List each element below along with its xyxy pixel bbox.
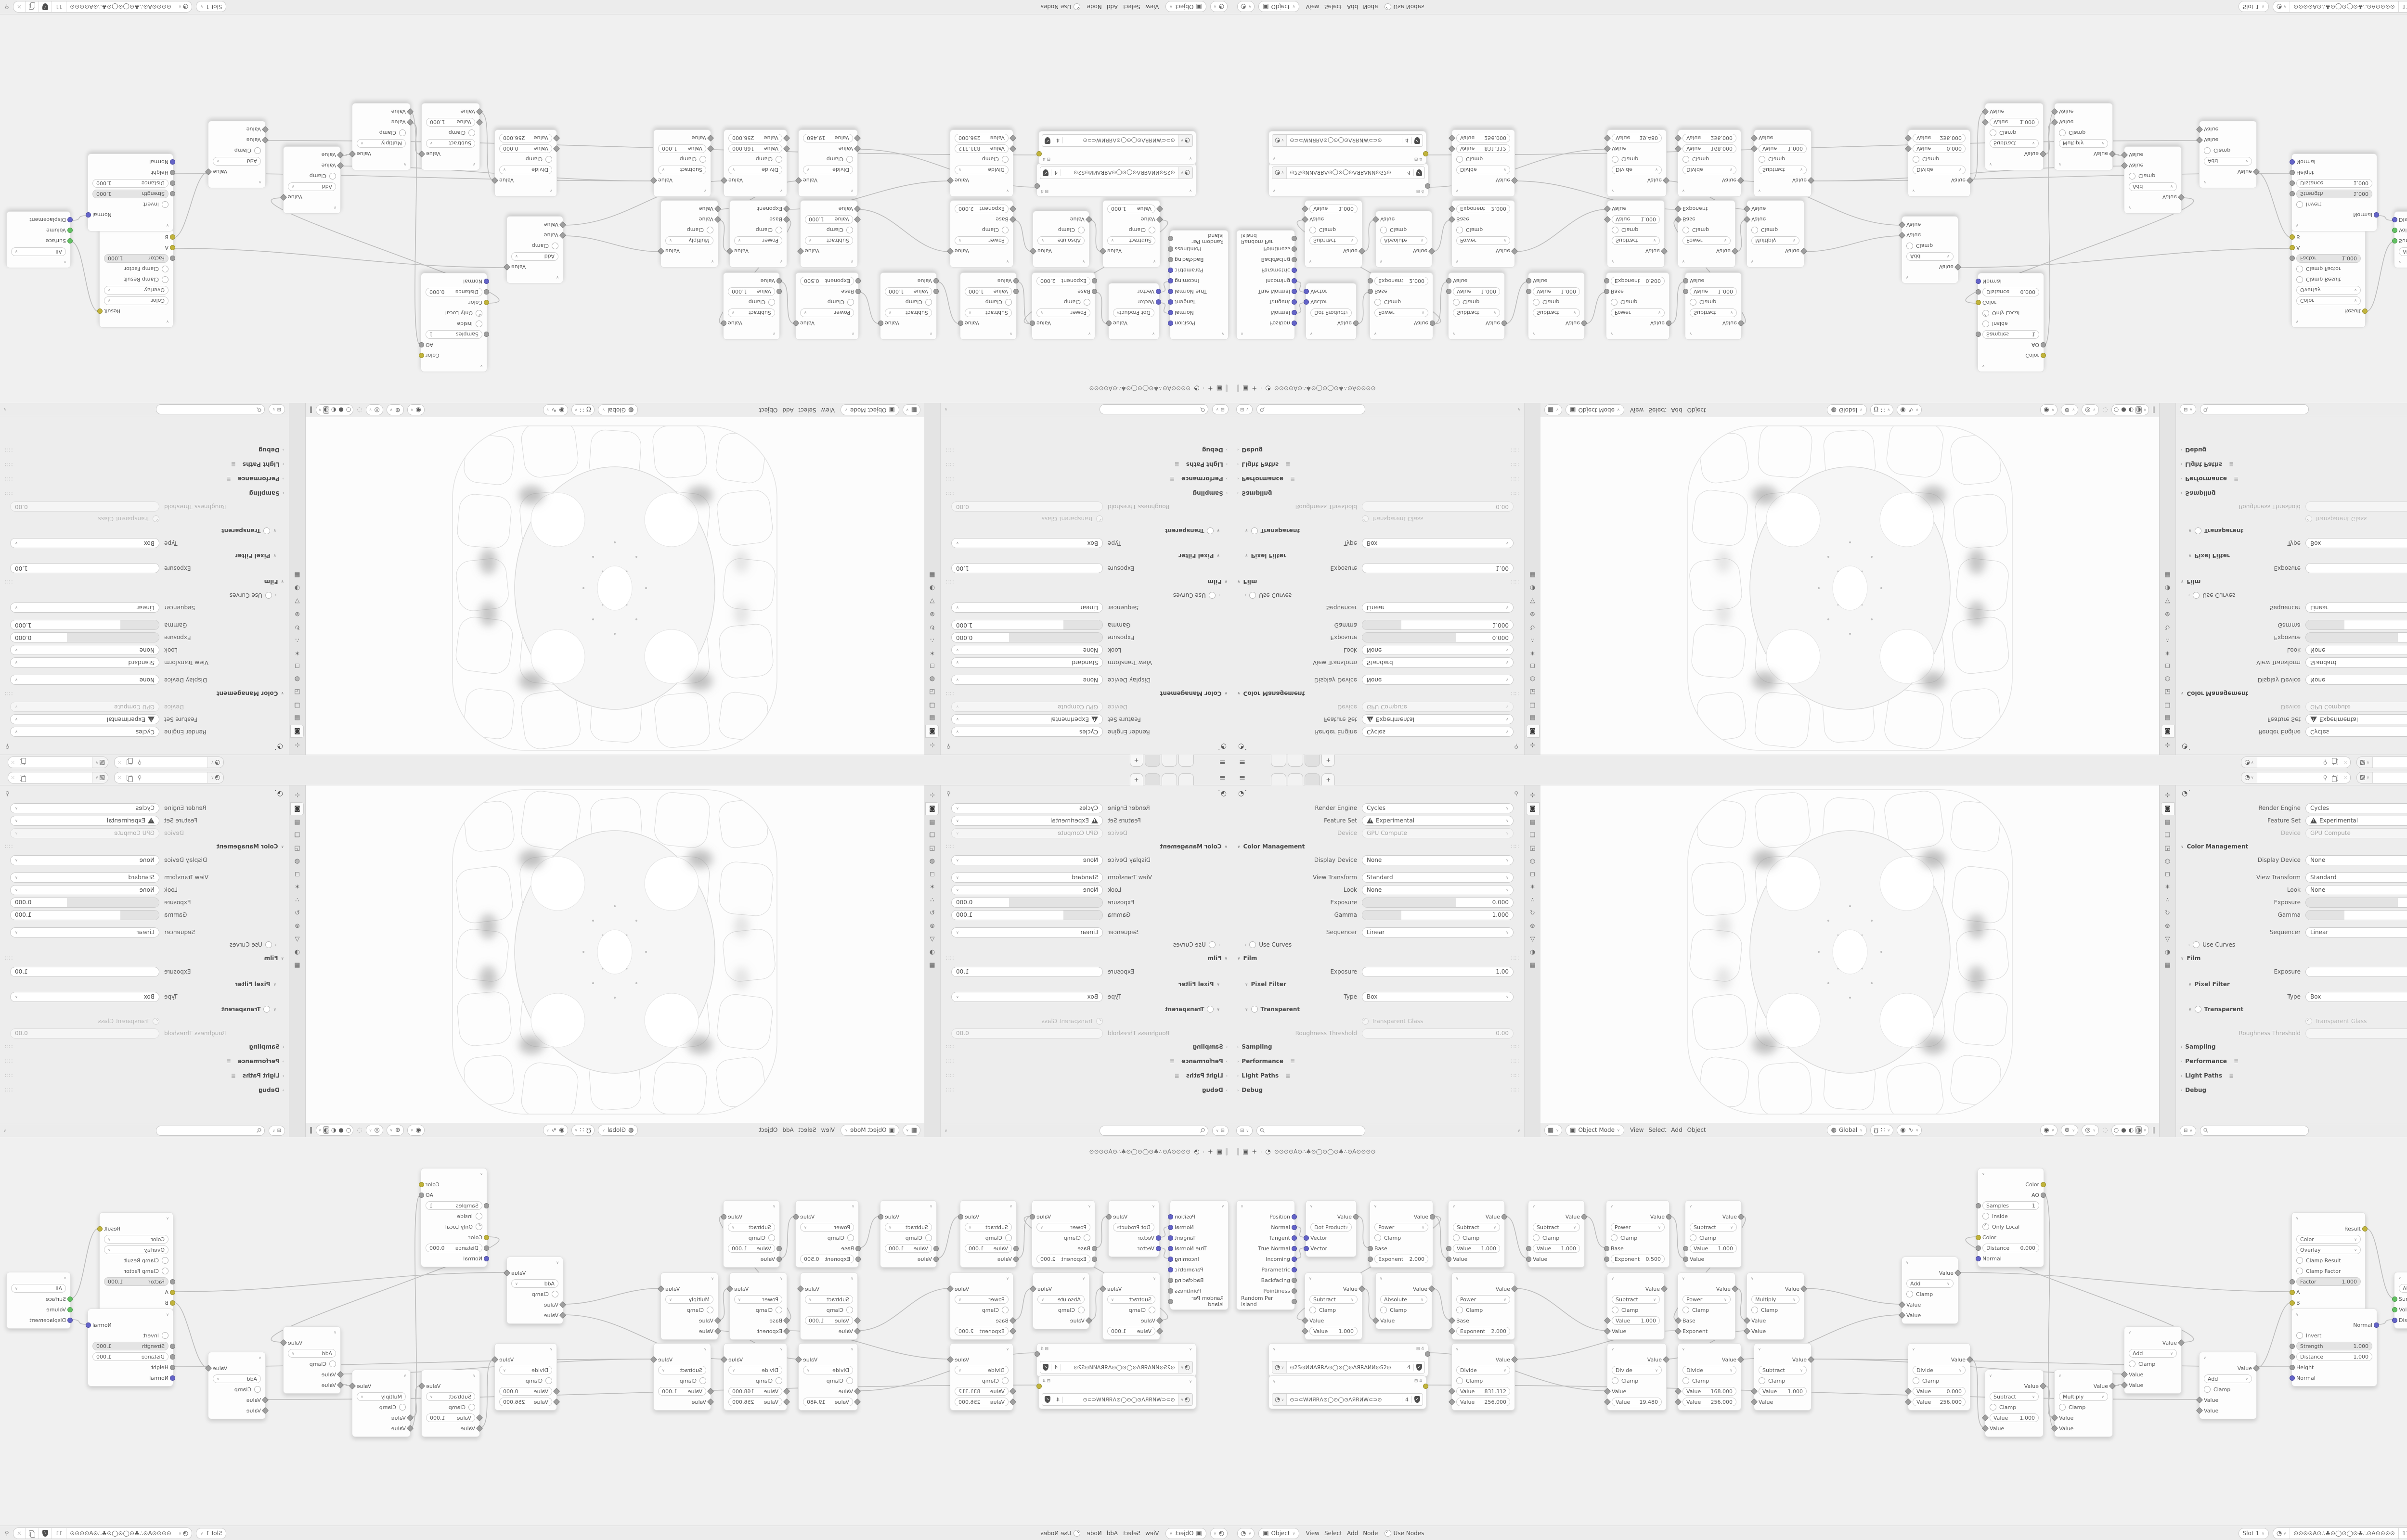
output-socket[interactable] [1035,1351,1040,1357]
output-socket[interactable] [1292,1235,1297,1241]
value-roughness-threshold[interactable]: 0.00 [2305,502,2407,512]
number-field[interactable]: Strength1.000 [2296,190,2372,198]
copy-icon[interactable] [25,1528,39,1539]
input-socket[interactable] [1976,1235,1981,1240]
close-icon[interactable]: × [8,774,17,781]
properties-tab-output[interactable]: ▤ [1527,816,1539,828]
checkbox-icon[interactable] [254,147,261,154]
input-socket[interactable] [476,108,483,115]
visibility-dropdown-icon[interactable]: ◉∨ [407,405,425,416]
checkbox-icon[interactable] [1209,592,1216,599]
menu-view[interactable]: View [1628,407,1646,413]
close-icon[interactable]: × [13,1528,25,1539]
viewport-3d[interactable]: ▦∨ ▣Object Mode∨ ViewSelectAddObject ◍Gl… [1540,403,2159,755]
dropdown-device[interactable]: GPU Compute∨ [951,828,1103,838]
properties-tab-render[interactable]: ◙ [1526,725,1540,738]
number-field[interactable]: Value256.000 [1913,134,1966,142]
shading-rendered-icon[interactable]: ◑ [2136,407,2141,413]
operation-dropdown[interactable]: Add∨ [288,182,336,191]
dropdown-sequencer[interactable]: Linear∨ [10,927,159,937]
node-header[interactable]: ∨ [1902,272,1958,283]
use-curves-row[interactable]: ›Use Curves [1234,938,1519,951]
operation-dropdown[interactable]: Subtract∨ [1453,1223,1500,1232]
output-socket[interactable] [1430,1214,1435,1219]
number-field[interactable]: Value256.000 [728,1398,782,1406]
properties-tab-particles[interactable]: ∴ [291,634,304,646]
input-socket[interactable] [854,216,861,223]
section-color-management[interactable]: ∨Color Management∷∷ [1234,839,1519,854]
number-field[interactable]: Value831.312 [1456,1387,1510,1396]
value-exposure[interactable]: 1.00 [10,967,159,977]
node-header[interactable]: ∨ [1747,1273,1804,1283]
node-header[interactable]: ∨ [421,1168,487,1179]
dropdown-type[interactable]: Box∨ [1362,539,1514,549]
number-field[interactable]: Factor1.000 [2296,1277,2361,1286]
orientation-dropdown[interactable]: ◍Global∨ [598,1125,638,1136]
input-socket[interactable] [1683,1246,1688,1251]
output-socket[interactable] [1100,248,1106,255]
checkbox-icon[interactable] [1084,299,1090,306]
input-socket[interactable] [776,1246,782,1251]
operation-dropdown[interactable]: Divide∨ [803,166,853,174]
node-header[interactable]: ∨ [1170,1201,1228,1211]
operation-dropdown[interactable]: Subtract∨ [1309,1295,1358,1304]
shading-rendered-icon[interactable]: ◑ [324,407,328,413]
node-header[interactable]: ∨ [1685,329,1741,339]
input-socket[interactable] [854,1388,861,1395]
number-field[interactable]: Distance0.000 [1982,1244,2039,1252]
menu-select[interactable]: Select [1120,1530,1143,1537]
node-math-subtract[interactable]: ∨ValueSubtract∨ClampValue1.000Value [960,272,1017,340]
properties-tab-world[interactable]: ◍ [926,855,939,867]
node-math-add[interactable]: ∨ValueAdd∨ClampValueValue [2199,1352,2257,1419]
input-socket[interactable] [170,256,175,261]
properties-tab-object[interactable]: ◻ [1527,660,1539,672]
menu-node[interactable]: Node [1360,3,1380,10]
dropdown-display-device[interactable]: None∨ [2305,675,2407,685]
node-ambient-occlusion[interactable]: ∨ColorAOSamples1InsideOnly LocalColorDis… [421,1168,487,1267]
use-curves-row[interactable]: ›Use Curves [945,589,1230,602]
input-socket[interactable] [707,145,714,152]
node-node-group[interactable]: ∨⊟ 4◔∨⊙⊃⊂WИЯRΛ⊙◯⊙◯⊙ΛЯRИW⊂⊃⊙4 [1268,131,1426,165]
input-socket[interactable] [1092,289,1097,294]
input-socket[interactable] [854,1328,861,1335]
input-socket[interactable] [262,1407,269,1414]
input-socket[interactable] [484,1256,489,1261]
properties-tab-constraints[interactable]: ⊚ [2161,608,2174,620]
node-header[interactable]: ∨ [1452,1344,1514,1354]
properties-tab-object[interactable]: ◻ [2161,868,2174,880]
subsection-pixel-filter[interactable]: ∨Pixel Filter [4,550,287,562]
operation-dropdown[interactable]: Color∨ [2296,1235,2361,1244]
checkbox-icon[interactable] [1982,1223,1989,1230]
output-socket[interactable] [1168,299,1173,305]
output-socket[interactable] [1967,177,1973,184]
group-name[interactable]: ⊙2S⊙ИИΔЯRΛ⊙◯⊙◯⊙ΛЯRΔИИ⊙S2⊙ [1287,170,1404,176]
output-socket[interactable] [1511,248,1518,255]
properties-tab-data[interactable]: ▽ [926,933,939,945]
checkbox-icon[interactable] [707,1307,713,1313]
use-nodes-toggle[interactable]: Use Nodes [1041,3,1081,10]
operation-dropdown[interactable]: Subtract∨ [1690,1223,1737,1232]
properties-tab-tool[interactable]: ⊹ [926,789,939,801]
dropdown-render-engine[interactable]: Cycles∨ [2305,803,2407,813]
output-socket[interactable] [1292,1299,1297,1304]
output-socket[interactable] [2041,353,2046,358]
menu-add[interactable]: Add [1345,1530,1360,1537]
properties-tab-material[interactable]: ◑ [926,582,939,594]
use-nodes-toggle[interactable]: Use Nodes [1385,3,1424,10]
properties-tab-modifiers[interactable]: ✶ [291,881,304,893]
dropdown-type[interactable]: Box∨ [951,539,1103,549]
properties-tab-physics[interactable]: ↻ [1527,907,1539,919]
section-light-paths[interactable]: ›Light Paths≣∷∷ [945,1068,1230,1083]
input-socket[interactable] [1446,278,1451,283]
checkbox-icon[interactable] [1751,227,1758,233]
material-ball-icon[interactable]: ◔∨ [1272,1361,1287,1373]
properties-tab-output[interactable]: ▤ [291,816,304,828]
node-header[interactable]: ∨ [960,329,1016,339]
input-socket[interactable] [783,1388,790,1395]
overlays-dropdown-icon[interactable]: ◎∨ [2082,1125,2099,1136]
input-socket[interactable] [1899,221,1905,228]
properties-tab-tool[interactable]: ⊹ [2161,789,2174,801]
node-math-power[interactable]: ∨ValuePower∨ClampBaseExponent2.000 [1451,1272,1515,1340]
pin-icon[interactable]: ⚲ [135,774,144,781]
operation-dropdown[interactable]: Power∨ [1682,236,1731,245]
node-mix-color[interactable]: ∨ResultColor∨Overlay∨Clamp ResultClamp F… [99,229,173,328]
checkbox-icon[interactable] [1982,310,1989,317]
input-socket[interactable] [1683,278,1688,283]
checkbox-icon[interactable] [162,201,168,208]
operation-dropdown[interactable]: All∨ [2399,247,2407,256]
output-socket[interactable] [1168,1235,1173,1241]
input-socket[interactable] [67,217,73,222]
fake-user-shield-icon[interactable] [1040,169,1051,176]
material-ball-icon[interactable]: ◔∨ [2241,772,2257,783]
operation-dropdown[interactable]: Overlay∨ [104,286,168,295]
properties-tab-tool[interactable]: ⊹ [291,789,304,801]
operation-dropdown[interactable]: Subtract∨ [1690,308,1737,317]
properties-tab-scene[interactable]: ◲ [291,686,304,698]
section-film[interactable]: ∨Film∷∷ [2178,575,2407,589]
operation-dropdown[interactable]: Subtract∨ [1107,236,1155,245]
node-header[interactable]: ∨ [1452,186,1514,196]
checkbox-icon[interactable] [254,1386,261,1393]
mode-dropdown[interactable]: ▣Object Mode∨ [1566,1125,1624,1136]
dropdown-view-transform[interactable]: Standard∨ [951,873,1103,883]
input-socket[interactable] [559,232,566,239]
menu-object[interactable]: Object [756,407,780,413]
properties-tab-modifiers[interactable]: ✶ [926,647,939,659]
node-math-subtract[interactable]: ∨ValueSubtract∨ClampValue1.000Value [1685,1200,1742,1268]
checkbox-icon[interactable] [768,1234,775,1241]
output-socket[interactable] [1168,236,1173,241]
xray-toggle-icon[interactable]: ◌ [2102,407,2108,413]
number-field[interactable]: Value256.000 [1682,1398,1736,1406]
fake-user-shield-icon[interactable] [1411,137,1423,144]
input-socket[interactable] [262,1397,269,1403]
output-socket[interactable] [1666,321,1671,326]
value-exposure[interactable]: 0.000 [951,633,1103,643]
properties-tab-particles[interactable]: ∴ [1527,634,1539,646]
value-roughness-threshold[interactable]: 0.00 [951,1028,1103,1039]
node-header[interactable]: ∨ [1452,1273,1514,1283]
node-header[interactable]: ∨ [1678,1344,1741,1354]
input-socket[interactable] [2392,1296,2397,1302]
checkbox-icon[interactable] [545,1377,552,1384]
input-socket[interactable] [933,1257,939,1262]
properties-tab-texture[interactable]: ▦ [2161,569,2174,581]
input-socket[interactable] [1905,135,1912,141]
operation-dropdown[interactable]: Multiply∨ [1751,236,1799,245]
checkbox-icon[interactable] [1611,299,1618,306]
add-workspace-button[interactable]: + [1321,773,1335,785]
properties-tab-view-layer[interactable]: ❏ [291,829,304,841]
input-socket[interactable] [484,332,489,337]
input-socket[interactable] [170,191,175,196]
value-gamma[interactable]: 1.000 [1362,620,1514,630]
material-name-field[interactable] [2257,757,2321,768]
output-socket[interactable] [2362,308,2368,314]
properties-tab-physics[interactable]: ↻ [2161,907,2174,919]
node-header[interactable]: ∨ [799,1344,857,1354]
output-socket[interactable] [1423,1384,1428,1389]
checkbox-icon[interactable] [1906,1291,1913,1297]
checkbox-icon[interactable] [1456,156,1463,163]
checkbox-icon[interactable] [1533,299,1540,306]
node-header[interactable]: ∨⊟ 4 [1269,186,1428,196]
properties-tab-modifiers[interactable]: ✶ [926,881,939,893]
material-name-field[interactable] [144,772,207,783]
output-socket[interactable] [2253,1365,2260,1372]
input-socket[interactable] [170,1300,175,1306]
node-geometry[interactable]: ∨PositionNormalTangentTrue NormalIncomin… [1236,1200,1295,1310]
mode-dropdown[interactable]: ▣Object Mode∨ [841,405,899,416]
checkbox-icon[interactable] [1913,1377,1919,1384]
node-math-subtract[interactable]: ∨ValueSubtract∨ClampValue1.000Value [800,200,858,268]
material-name[interactable]: ⊙⊙⊙⊙A⊙∴♣⊙◯⊙◯⊙♣∴⊙A⊙⊙⊙⊙ [2290,1,2399,12]
dropdown-feature-set[interactable]: Experimental∨ [2305,715,2407,725]
dropdown-view-transform[interactable]: Standard∨ [10,658,159,668]
section-performance[interactable]: ›Performance≣∷∷ [945,472,1230,486]
node-math-power[interactable]: ∨ValuePower∨ClampBaseExponent [1678,1272,1735,1340]
output-socket[interactable] [1732,248,1738,255]
operation-dropdown[interactable]: Color∨ [104,1235,168,1244]
node-geometry[interactable]: ∨PositionNormalTangentTrue NormalIncomin… [1170,230,1229,340]
node-math-subtract[interactable]: ∨ValueSubtract∨ClampValue1.000Value [1985,103,2044,170]
node-header[interactable]: ∨ [1978,361,2044,372]
dropdown-view-transform[interactable]: Standard∨ [2305,873,2407,883]
subsection-transparent[interactable]: ∨Transparent [4,525,287,537]
dropdown-feature-set[interactable]: Experimental∨ [1362,816,1514,826]
input-socket[interactable] [1302,1328,1308,1335]
checkbox-icon[interactable] [329,1360,336,1367]
node-node-group[interactable]: ∨⊟ 4◔∨⊙2S⊙ИИΔЯRΛ⊙◯⊙◯⊙ΛЯRΔИИ⊙S2⊙4 [1036,163,1196,197]
pause-icon[interactable]: ‖ [310,1127,313,1133]
dropdown-display-device[interactable]: None∨ [2305,855,2407,865]
input-socket[interactable] [1905,145,1912,152]
node-ambient-occlusion[interactable]: ∨ColorAOSamples1InsideOnly LocalColorDis… [1978,273,2044,372]
checkbox-icon[interactable] [1249,592,1256,599]
menu-view[interactable]: View [1303,1530,1321,1537]
node-ambient-occlusion[interactable]: ∨ColorAOSamples1InsideOnly LocalColorDis… [1978,1168,2044,1267]
input-socket[interactable] [1009,145,1016,152]
properties-tab-data[interactable]: ▽ [926,595,939,607]
input-socket[interactable] [1976,332,1981,337]
checkbox-icon[interactable] [162,1257,168,1264]
section-sampling[interactable]: ›Sampling∷∷ [2178,1039,2407,1054]
node-material-output[interactable]: ∨All∨SurfaceVolumeDisplacement [6,1272,71,1329]
shader-editor[interactable]: ▣ + › ◔ ⊙⊙⊙⊙A⊙∴♣⊙◯⊙◯⊙♣∴⊙A⊙⊙⊙⊙ ∨PositionN… [0,0,1232,403]
section-debug[interactable]: ›Debug∷∷ [2178,443,2407,457]
properties-tab-output[interactable]: ▤ [2161,712,2174,724]
input-socket[interactable] [714,205,721,212]
dropdown-device[interactable]: GPU Compute∨ [10,828,159,838]
properties-tab-scene[interactable]: ◲ [291,842,304,854]
hamburger-menu-icon[interactable]: ≡ [1239,759,1245,767]
dropdown-view-transform[interactable]: Standard∨ [951,658,1103,668]
input-socket[interactable] [1009,1388,1016,1395]
output-socket[interactable] [726,248,733,255]
checkbox-icon[interactable] [264,527,271,534]
properties-tab-constraints[interactable]: ⊚ [291,920,304,932]
operation-dropdown[interactable]: Subtract∨ [728,308,775,317]
output-socket[interactable] [1168,278,1173,283]
input-socket[interactable] [1156,1235,1161,1241]
output-socket[interactable] [1292,1257,1297,1262]
number-field[interactable]: Value1.000 [1690,287,1737,296]
node-header[interactable]: ∨ [1678,257,1735,267]
dropdown-render-engine[interactable]: Cycles∨ [951,727,1103,737]
dropdown-display-device[interactable]: None∨ [1362,855,1514,865]
value-gamma[interactable]: 1.000 [10,620,159,630]
visibility-dropdown-icon[interactable]: ◉∨ [2040,1125,2058,1136]
operation-dropdown[interactable]: Multiply∨ [2059,139,2108,148]
material-ball-icon[interactable]: ◔∨ [1272,1394,1287,1405]
node-header[interactable]: ∨ [724,1201,779,1211]
input-socket[interactable] [1009,205,1016,212]
node-header[interactable]: ∨ [2200,177,2256,188]
menu-select[interactable]: Select [796,1127,819,1133]
output-socket[interactable] [947,1356,954,1363]
pin-icon[interactable]: ⚲ [5,743,10,750]
filter-button[interactable]: ⊟∨ [269,405,285,415]
node-math-subtract[interactable]: ∨ValueSubtract∨ClampValue1.000Value [800,1272,858,1340]
gizmo-dropdown-icon[interactable]: ⊕∨ [387,405,404,416]
operation-dropdown[interactable]: Subtract∨ [1612,236,1660,245]
input-socket[interactable] [1013,289,1019,294]
dropdown-render-engine[interactable]: Cycles∨ [10,727,159,737]
output-socket[interactable] [793,321,799,326]
users-count-badge[interactable]: 4 [1051,170,1061,176]
properties-tab-physics[interactable]: ↻ [1527,621,1539,633]
output-socket[interactable] [1501,1214,1507,1219]
node-header[interactable]: ∨ [1103,1273,1160,1283]
number-field[interactable]: Value1.000 [805,1316,853,1325]
output-socket[interactable] [419,342,424,347]
checkbox-icon[interactable] [1533,1234,1540,1241]
node-math-multiply[interactable]: ∨ValueMultiply∨ClampValueValue [352,103,411,170]
properties-tab-texture[interactable]: ▦ [291,959,304,971]
node-math-multiply[interactable]: ∨ValueMultiply∨ClampValueValue [352,1370,411,1437]
operation-dropdown[interactable]: Power∨ [1611,308,1665,317]
node-math-divide[interactable]: ∨ValueDivide∨ClampValue831.312Value256.0… [950,129,1013,197]
node-material-output[interactable]: ∨All∨SurfaceVolumeDisplacement [2394,211,2407,268]
output-socket[interactable] [1036,1384,1042,1389]
properties-tab-world[interactable]: ◍ [291,673,304,685]
node-header[interactable]: ∨ [1033,1273,1089,1283]
input-socket[interactable] [67,1318,73,1323]
checkbox-icon[interactable] [1990,1404,1996,1411]
properties-tab-world[interactable]: ◍ [926,673,939,685]
node-header[interactable]: ∨ [1978,1168,2044,1179]
node-header[interactable]: ∨ [1449,329,1504,339]
output-socket[interactable] [349,151,356,157]
operation-dropdown[interactable]: Divide∨ [955,1366,1009,1374]
input-socket[interactable] [1751,1388,1758,1395]
gizmo-dropdown-icon[interactable]: ⊕∨ [2061,1125,2078,1136]
operation-dropdown[interactable]: Add∨ [511,252,558,261]
editor-type-button[interactable]: ◔∨ [1237,1528,1255,1539]
proportional-editing-icon[interactable]: ◉∿∨ [1897,405,1922,416]
operation-dropdown[interactable]: Subtract∨ [965,308,1012,317]
output-socket[interactable] [1359,1285,1365,1292]
operation-dropdown[interactable]: Divide∨ [1456,1366,1510,1374]
checkbox-icon[interactable] [707,227,713,233]
node-node-group[interactable]: ∨⊟ 4◔∨⊙2S⊙ИИΔЯRΛ⊙◯⊙◯⊙ΛЯRΔИИ⊙S2⊙4 [1036,1343,1196,1377]
operation-dropdown[interactable]: Divide∨ [1913,166,1966,174]
menu-add[interactable]: Add [1345,3,1360,10]
group-name[interactable]: ⊙⊃⊂WИЯRΛ⊙◯⊙◯⊙ΛЯRИW⊂⊃⊙ [1063,1397,1178,1403]
input-socket[interactable] [170,1290,175,1295]
section-sampling[interactable]: ›Sampling∷∷ [2178,486,2407,500]
section-sampling[interactable]: ›Sampling∷∷ [945,486,1230,500]
section-light-paths[interactable]: ›Light Paths≣∷∷ [2178,1068,2407,1083]
output-socket[interactable] [658,248,664,255]
material-name-field[interactable] [144,757,207,768]
menu-select[interactable]: Select [1322,1530,1345,1537]
checkbox-icon[interactable] [2305,515,2312,522]
properties-tab-material[interactable]: ◑ [926,946,939,958]
operation-dropdown[interactable]: Multiply∨ [665,1295,713,1304]
output-socket[interactable] [1292,289,1297,294]
node-math-power[interactable]: ∨ValuePower∨ClampBaseExponent2.000 [1370,272,1433,340]
number-field[interactable]: Value1.000 [426,1413,475,1422]
input-socket[interactable] [854,1317,861,1324]
output-socket[interactable] [1292,1214,1297,1219]
material-ball-icon[interactable]: ◔∨ [2273,1,2290,12]
properties-tab-output[interactable]: ▤ [926,712,939,724]
output-socket[interactable] [878,1214,883,1219]
input-socket[interactable] [1683,1257,1688,1262]
node-header[interactable]: ∨ [1109,1201,1159,1211]
input-socket[interactable] [1372,1317,1379,1324]
input-socket[interactable] [1751,135,1758,141]
output-socket[interactable] [1292,321,1297,326]
node-header[interactable]: ∨⊟ 4 [1039,1376,1196,1386]
dropdown-sequencer[interactable]: Linear∨ [1362,927,1514,937]
input-socket[interactable] [933,278,939,283]
dropdown-device[interactable]: GPU Compute∨ [1362,702,1514,712]
section-debug[interactable]: ›Debug∷∷ [1234,1083,1519,1097]
number-field[interactable]: Value256.000 [955,134,1009,142]
close-icon[interactable]: × [115,759,124,766]
checkbox-icon[interactable] [1612,227,1618,233]
shading-solid-icon[interactable]: ● [338,1127,343,1133]
number-field[interactable]: Value256.000 [1456,134,1510,142]
node-header[interactable]: ∨ [1170,329,1228,339]
